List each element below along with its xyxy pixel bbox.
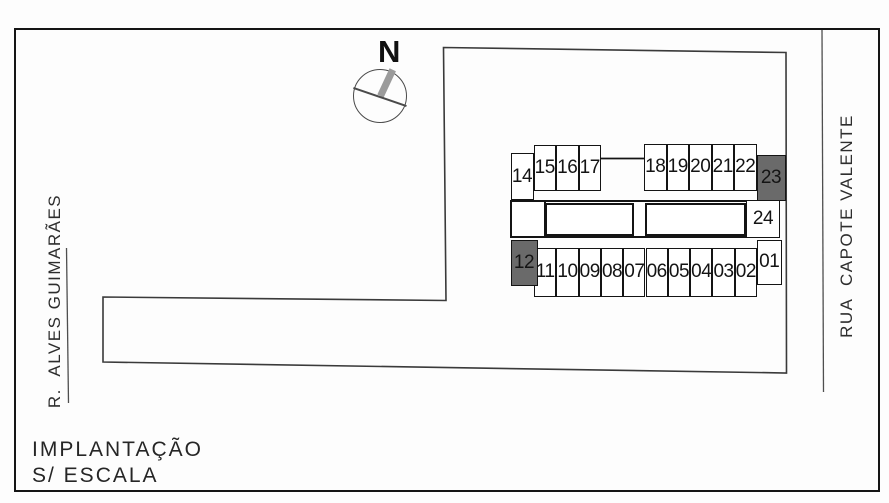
drawing-caption: IMPLANTAÇÃO S/ ESCALA (32, 437, 203, 489)
unit-17: 17 (579, 145, 602, 192)
unit-15: 15 (534, 145, 557, 192)
caption-title: IMPLANTAÇÃO (32, 437, 203, 463)
unit-21: 21 (712, 144, 735, 192)
unit-24: 24 (746, 200, 780, 238)
building-block-1 (545, 203, 634, 237)
caption-scale: S/ ESCALA (32, 463, 203, 489)
unit-20: 20 (689, 144, 712, 192)
unit-06: 06 (646, 248, 668, 297)
north-label: N (378, 34, 400, 70)
street-line-left (67, 248, 69, 403)
unit-09: 09 (579, 248, 601, 297)
site-plan-page: N R. ALVES GUIMARÃES RUA CAPOTE VALENTE … (0, 0, 889, 503)
unit-16: 16 (556, 145, 579, 192)
unit-10: 10 (556, 248, 578, 297)
unit-22: 22 (734, 144, 757, 192)
unit-23: 23 (757, 155, 786, 201)
street-name-right: RUA CAPOTE VALENTE (837, 114, 857, 338)
unit-04: 04 (690, 248, 712, 297)
unit-01: 01 (757, 240, 782, 286)
unit-08: 08 (601, 248, 623, 297)
unit-07: 07 (623, 248, 645, 297)
street-name-left: R. ALVES GUIMARÃES (45, 194, 65, 408)
unit-12: 12 (511, 240, 538, 286)
unit-19: 19 (667, 144, 690, 192)
building-block-2 (645, 203, 746, 237)
street-line-right (822, 30, 824, 392)
unit-18: 18 (644, 144, 667, 192)
unit-02: 02 (735, 248, 757, 297)
unit-05: 05 (668, 248, 690, 297)
unit-14: 14 (511, 153, 534, 200)
unit-03: 03 (712, 248, 734, 297)
